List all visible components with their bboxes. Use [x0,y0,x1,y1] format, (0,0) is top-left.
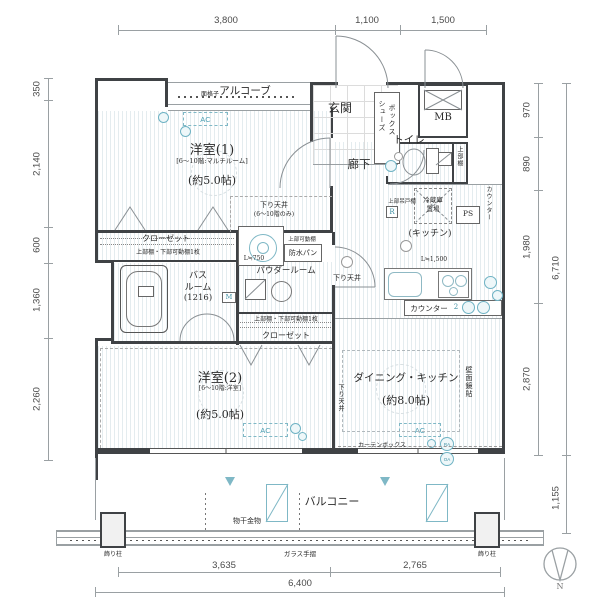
label-hallway: 廊下 [348,156,371,172]
ra-vent: RA [440,437,454,451]
closet-shelf-line [240,327,331,329]
dim-tick [534,455,543,456]
label-pillar-right: 飾り柱 [478,549,496,558]
balcony-slab-edge [504,458,505,520]
dim-tick [330,567,331,577]
label-closet2-shelf: 上部棚・下部可動棚1枚 [254,314,318,323]
symbol-circle [158,112,169,123]
label-curtain-box: カーテンボックス [358,440,406,449]
washer-drum-inner [257,242,269,254]
dim-top-3800: 3,800 [214,15,238,26]
laundry-hanger [426,484,448,522]
symbol-circle [400,240,412,252]
wall [95,230,333,233]
symbol-circle [484,276,497,289]
dim-left-600: 600 [32,237,43,253]
lowered-ceiling-guide [230,196,232,232]
label-western1-area: (約5.0帖) [188,172,236,188]
mb-meter [424,90,462,110]
dim-tick [562,83,571,84]
symbol-circle [180,126,191,137]
toilet-handwash [438,152,452,166]
label-kitchen-length: L≒1,500 [421,256,447,263]
dim-line-bottom-total [95,592,505,593]
label-western2-note: [6〜10階:洋室] [199,383,241,392]
oa-label: OA [444,457,451,462]
rail-end [56,530,57,546]
dim-tick [562,533,571,534]
ac-label: AC [260,426,270,435]
window-sill [168,110,312,111]
symbol-circle [341,256,353,268]
dim-line-balcony [566,455,567,533]
lowered-ceiling-zone [342,350,460,432]
dim-right-890: 890 [522,156,533,172]
decor-pillar-left [100,512,126,548]
label-closet1-shelf: 上部棚・下部可動棚1枚 [136,247,200,256]
label-alcove: アルコーブ [219,83,271,98]
label-fridge-2: 置場 [427,203,440,213]
ac-box-western2: AC [243,423,288,437]
label-m-mark: M [226,293,233,301]
label-ps: PS [463,209,473,218]
balcony-slab-edge [95,458,96,520]
label-range-mark: R [389,208,394,216]
entry-door-swing [336,36,388,88]
wall [302,448,358,454]
balcony-rail [56,544,544,546]
ac-box-western1: AC [183,112,228,126]
burner [455,275,467,287]
sink-bowl [388,272,422,297]
symbol-circle [298,432,307,441]
balcony-partition [299,492,300,530]
dim-left-350: 350 [32,81,43,97]
label-waterproof-pan: 防水パン [289,248,317,258]
label-shoe-box-1: シューズ [377,100,387,132]
toilet-roll [394,152,403,161]
oa-vent: OA [440,452,454,466]
wall [95,78,168,81]
dim-balcony-1155: 1,155 [551,486,562,510]
label-dining: ダイニング・キッチン [354,370,459,385]
dim-line-right [538,83,539,455]
dim-tick [44,460,53,461]
wall [332,232,335,245]
dim-line-left [48,78,49,460]
dim-tick [500,567,501,577]
wall [95,448,150,454]
burner [449,287,458,296]
label-balcony: バルコニー [305,493,360,509]
dim-right-2870: 2,870 [522,367,533,391]
dim-tick [44,227,53,228]
label-dining-area: (約8.0帖) [382,392,430,408]
dim-right-970: 970 [522,102,533,118]
label-kitchen: (キッチン) [408,226,451,239]
label-laundry: 物干金物 [233,516,261,526]
window-sill [168,104,312,105]
label-western2-area: (約5.0帖) [196,406,244,422]
closet-shelf-line [100,244,234,246]
wall [95,108,98,263]
balcony-rail [56,537,544,538]
dim-tick [534,303,543,304]
outlet-circle [462,301,475,314]
balcony-window-west2 [150,448,302,454]
dim-tick [400,25,401,35]
label-bath-2: ルーム [185,280,212,293]
lowered-ceiling-guide [230,196,332,198]
dim-bottom-3635: 3,635 [212,560,236,571]
label-wall-mirror: 壁面鏡貼 [464,366,474,398]
dim-top-1100: 1,100 [355,15,379,26]
label-dining-lowered: 下り天井 [336,384,345,412]
symbol-circle [385,160,397,172]
dim-right-1980: 1,980 [522,235,533,259]
wall [332,345,335,452]
dim-tick [534,190,543,191]
dim-right-6710: 6,710 [551,256,562,280]
dim-left-2140: 2,140 [32,152,43,176]
wall [466,142,468,184]
label-counter2: カウンター [410,303,448,314]
label-cupboard: 上部吊戸棚 [388,197,416,205]
dim-tick [118,567,119,577]
balcony-partition [205,492,206,530]
label-grille: 面格子 [201,89,219,98]
wall [452,144,454,182]
label-kitchen-counter: カウンター [484,186,493,221]
balcony-drain-triangles [225,477,390,486]
symbol-circle [492,290,503,301]
label-powder: パウダールーム [256,264,315,276]
dim-bottom-6400: 6,400 [288,578,312,589]
dim-tick [504,587,505,597]
dim-tick [44,100,53,101]
wall [332,285,335,345]
label-closet1: クローゼット [142,233,190,244]
wall [95,78,98,111]
label-powder-length: L≒750 [244,255,264,262]
wall [502,82,505,454]
wall [478,448,505,454]
dim-left-1360: 1,360 [32,288,43,312]
label-closet2: クローゼット [262,330,310,341]
dining-line [335,318,502,319]
dim-tick [44,78,53,79]
dim-tick [534,83,543,84]
label-entrance: 玄関 [328,99,352,116]
decor-pillar-right [474,512,500,548]
laundry-hanger [266,484,288,522]
bathtub-inner [126,271,162,327]
burner [442,275,454,287]
label-western1-note: [6〜10階:マルチルーム] [176,155,247,165]
label-counter2-num: 2 [454,303,458,311]
lowered-ceiling-guide [100,348,332,350]
dim-top-1500: 1,500 [431,15,455,26]
wall [98,260,238,262]
label-compass-north: N [557,582,564,591]
dim-tick [44,263,53,264]
wall [330,186,333,232]
label-mb: MB [434,112,452,123]
label-toilet-shelf: 上部棚 [455,146,464,167]
ac-label: AC [200,115,210,124]
bath-faucet [138,286,154,297]
label-toilet: トイレ [393,132,425,147]
dim-tick [534,137,543,138]
dim-tick [118,25,119,35]
label-pillar-left: 飾り柱 [104,549,122,558]
glass-rail-dots [70,540,530,541]
label-lowered-ceiling-mid: 下り天井 [333,273,361,283]
dim-bottom-2765: 2,765 [403,560,427,571]
wall [111,260,114,341]
label-lowered-ceiling-1-sub: (6〜10階のみ) [254,209,294,218]
dim-tick [95,587,96,597]
kitchen-line [388,184,502,185]
dim-tick [335,25,336,35]
dim-tick [44,338,53,339]
label-pan-shelf: 上部可動棚 [288,235,316,243]
label-bath-size: (1216) [184,293,212,303]
dim-line-top [118,30,486,31]
vanity [245,279,266,300]
rail-end [543,530,544,546]
dim-line-right-total [566,83,567,455]
dim-left-2260: 2,260 [32,387,43,411]
dim-tick [486,25,487,35]
wall [111,341,335,344]
outlet-circle [477,301,490,314]
floor-plan-canvas: 3,800 1,100 1,500 350 2,140 600 1,360 2,… [0,0,600,600]
powder-sink [271,281,292,302]
label-glass-rail: ガラス手摺 [284,548,316,558]
lowered-ceiling-guide [100,348,102,448]
balcony-rail [56,530,544,532]
compass-icon [544,548,576,580]
dim-line-bottom [118,572,500,573]
